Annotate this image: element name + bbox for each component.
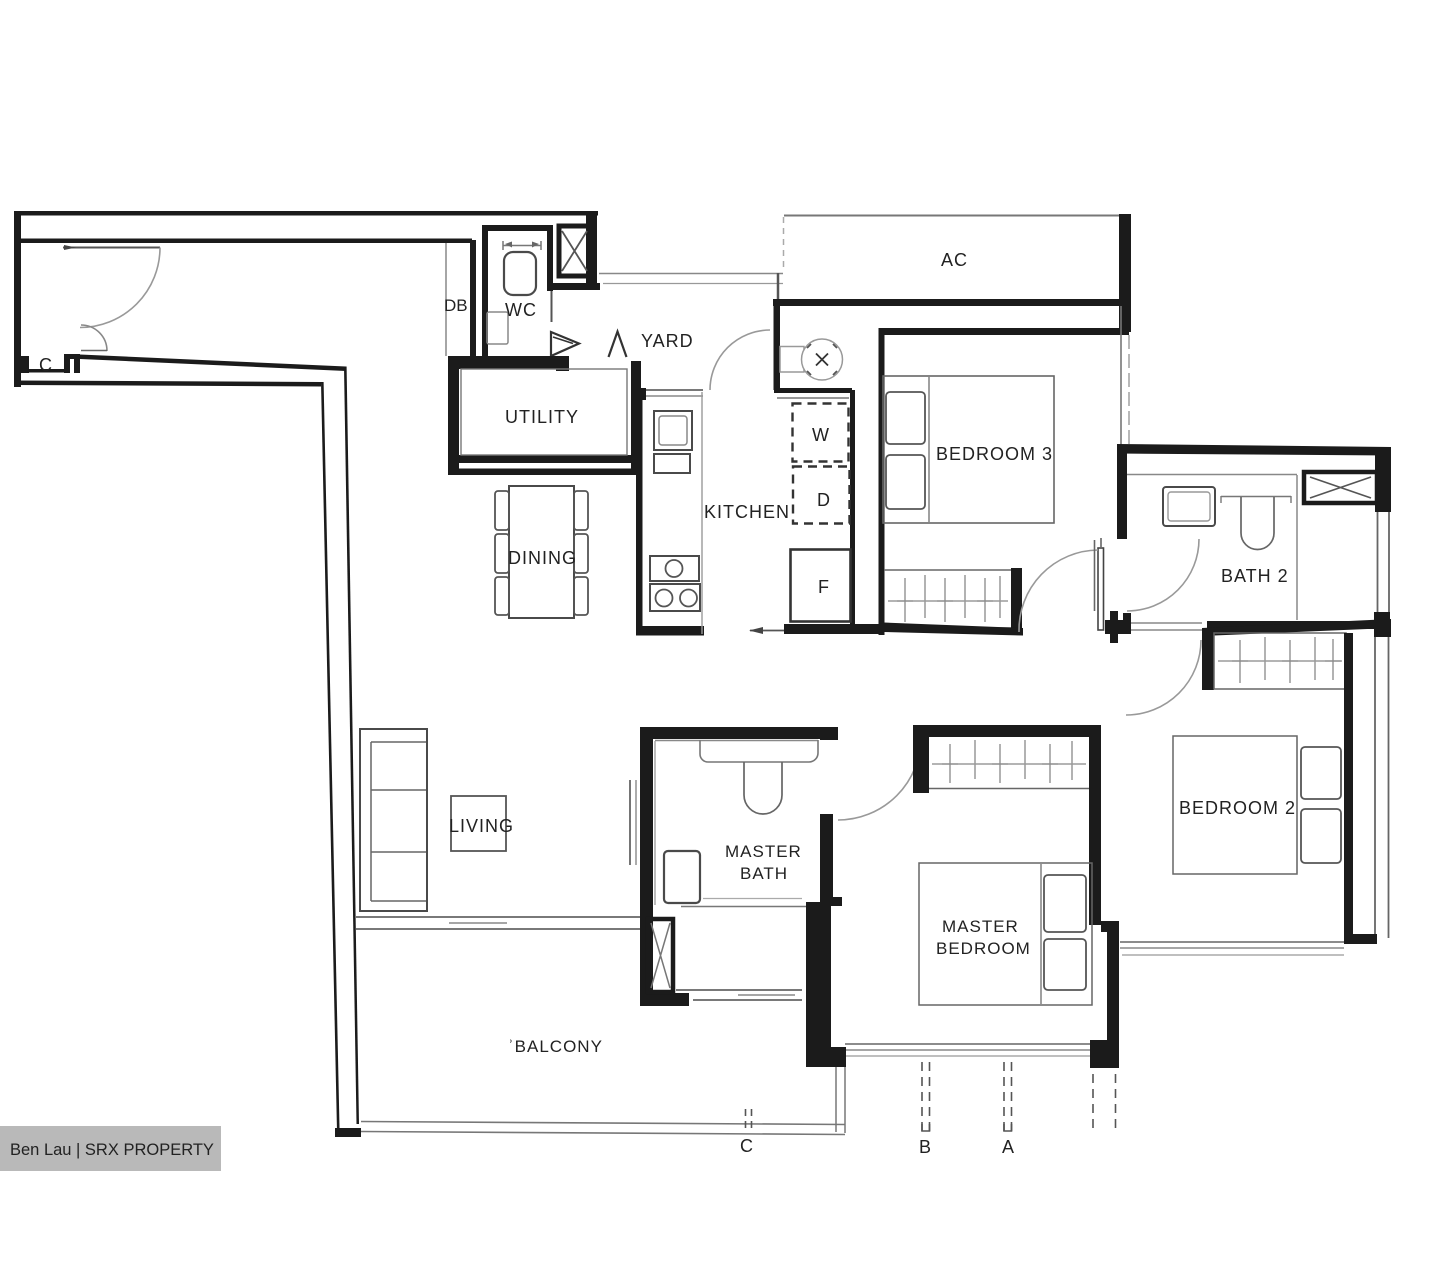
svg-text:MASTER: MASTER — [942, 917, 1019, 936]
svg-text:C: C — [39, 355, 52, 375]
svg-text:BATH: BATH — [740, 864, 788, 883]
svg-text:F: F — [818, 577, 829, 597]
svg-text:A: A — [1002, 1137, 1014, 1157]
svg-text:BEDROOM: BEDROOM — [936, 939, 1031, 958]
svg-text:MASTER: MASTER — [725, 842, 802, 861]
svg-text:DINING: DINING — [508, 548, 577, 568]
svg-text:B: B — [919, 1137, 931, 1157]
svg-text:DB: DB — [444, 296, 468, 315]
svg-text:C: C — [740, 1136, 753, 1156]
svg-text:BATH 2: BATH 2 — [1221, 566, 1289, 586]
svg-text:BEDROOM 2: BEDROOM 2 — [1179, 798, 1296, 818]
svg-text:LIVING: LIVING — [449, 816, 514, 836]
svg-text:BEDROOM 3: BEDROOM 3 — [936, 444, 1053, 464]
svg-text:ʾBALCONY: ʾBALCONY — [508, 1037, 603, 1056]
svg-text:AC: AC — [941, 250, 968, 270]
svg-text:WC: WC — [505, 300, 537, 320]
svg-text:Ben Lau | SRX PROPERTY: Ben Lau | SRX PROPERTY — [10, 1141, 214, 1159]
svg-text:W: W — [812, 425, 829, 445]
svg-text:KITCHEN: KITCHEN — [704, 502, 790, 522]
svg-text:YARD: YARD — [641, 331, 694, 351]
svg-text:D: D — [817, 490, 830, 510]
svg-text:UTILITY: UTILITY — [505, 407, 579, 427]
